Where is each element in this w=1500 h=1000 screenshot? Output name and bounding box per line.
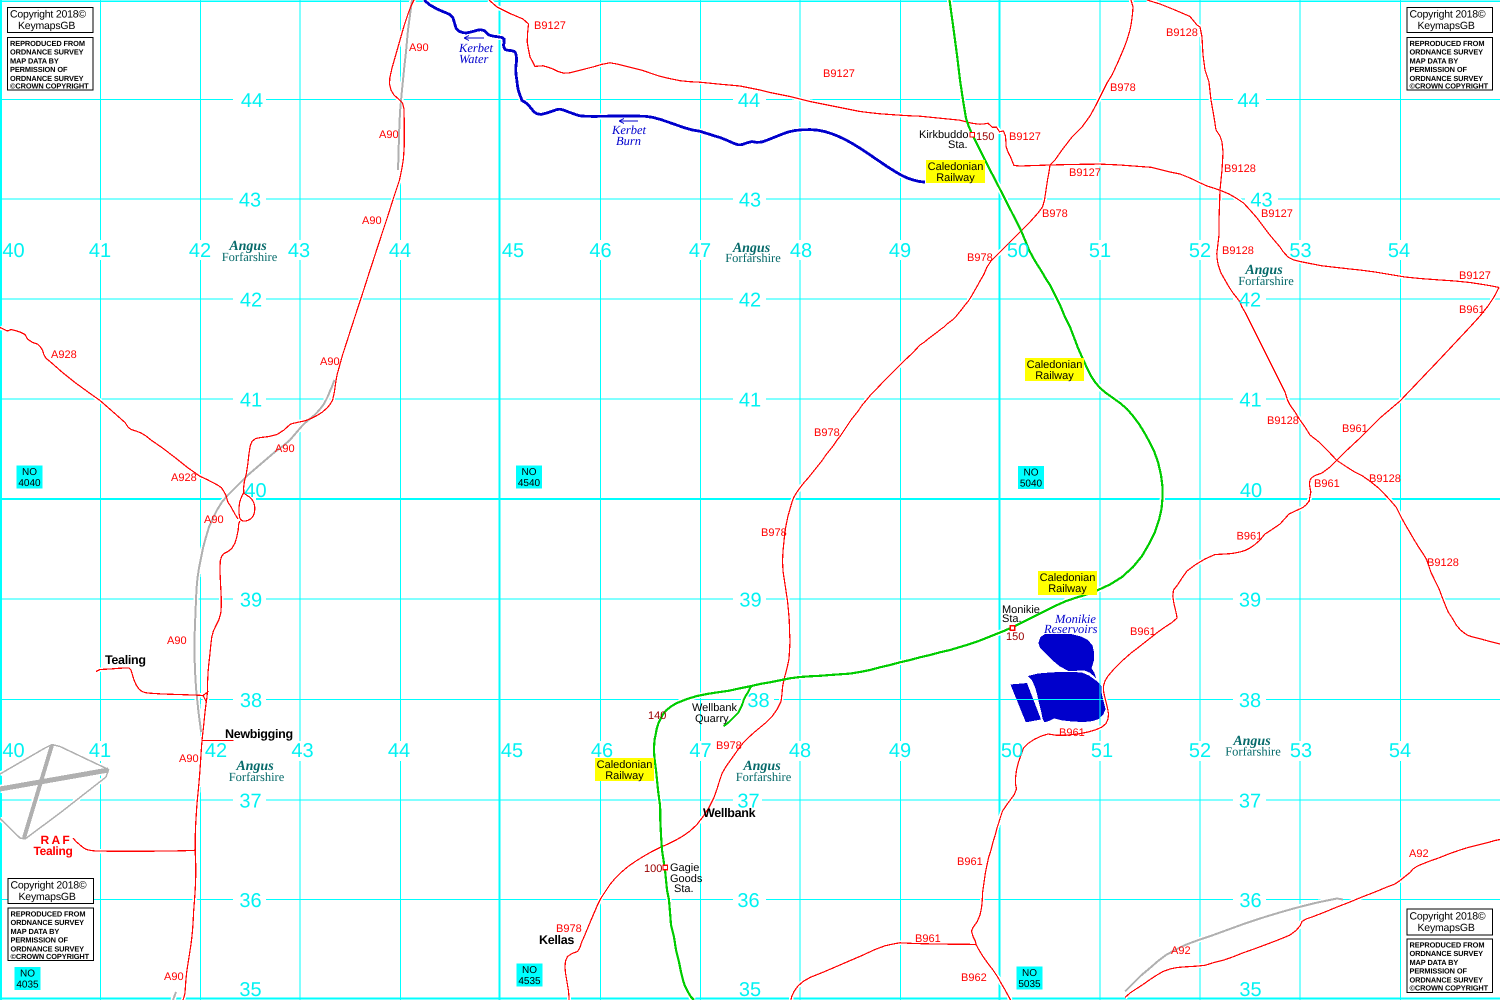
- svg-text:42: 42: [189, 240, 211, 262]
- svg-text:Burn: Burn: [616, 134, 641, 148]
- svg-text:KeymapsGB: KeymapsGB: [19, 891, 76, 903]
- svg-text:5035: 5035: [1018, 979, 1041, 990]
- svg-text:40: 40: [2, 740, 24, 762]
- svg-text:48: 48: [790, 240, 812, 262]
- svg-text:B9127: B9127: [1069, 167, 1101, 179]
- svg-text:A92: A92: [1171, 945, 1191, 957]
- svg-text:Tealing: Tealing: [105, 653, 146, 667]
- svg-text:B962: B962: [961, 972, 987, 984]
- svg-text:44: 44: [388, 740, 410, 762]
- svg-text:B978: B978: [716, 740, 742, 752]
- svg-text:REPRODUCED FROM: REPRODUCED FROM: [1410, 39, 1485, 48]
- svg-text:Forfarshire: Forfarshire: [725, 251, 781, 265]
- svg-text:B961: B961: [1237, 531, 1263, 543]
- svg-text:40: 40: [1240, 480, 1262, 502]
- svg-text:B9127: B9127: [1009, 131, 1041, 143]
- svg-text:MAP DATA BY: MAP DATA BY: [1410, 56, 1459, 65]
- svg-text:B978: B978: [1042, 208, 1068, 220]
- svg-text:42: 42: [240, 290, 262, 312]
- svg-text:43: 43: [739, 190, 761, 212]
- svg-text:48: 48: [789, 740, 811, 762]
- svg-text:37: 37: [239, 791, 261, 813]
- svg-text:ORDNANCE SURVEY: ORDNANCE SURVEY: [11, 918, 85, 927]
- svg-text:REPRODUCED FROM: REPRODUCED FROM: [11, 910, 86, 919]
- svg-text:44: 44: [738, 90, 760, 112]
- svg-text:44: 44: [1237, 90, 1259, 112]
- svg-text:Copyright 2018©: Copyright 2018©: [11, 880, 87, 892]
- svg-text:43: 43: [239, 190, 261, 212]
- svg-text:NO: NO: [1024, 468, 1039, 479]
- svg-text:40: 40: [244, 480, 266, 502]
- svg-text:NO: NO: [522, 467, 537, 478]
- svg-text:Forfarshire: Forfarshire: [229, 770, 285, 784]
- svg-text:B978: B978: [761, 527, 787, 539]
- svg-text:46: 46: [589, 240, 611, 262]
- svg-text:REPRODUCED FROM: REPRODUCED FROM: [10, 39, 85, 48]
- svg-text:B9128: B9128: [1222, 245, 1254, 257]
- svg-text:Water: Water: [459, 52, 489, 66]
- svg-text:A928: A928: [51, 349, 77, 361]
- svg-text:KeymapsGB: KeymapsGB: [1418, 922, 1475, 934]
- svg-text:4540: 4540: [518, 478, 541, 489]
- svg-text:NO: NO: [20, 969, 35, 980]
- svg-text:4035: 4035: [16, 980, 39, 991]
- svg-text:39: 39: [1239, 590, 1261, 612]
- svg-text:©CROWN COPYRIGHT: ©CROWN COPYRIGHT: [11, 952, 90, 961]
- svg-text:43: 43: [288, 240, 310, 262]
- svg-text:Forfarshire: Forfarshire: [222, 250, 278, 264]
- svg-text:35: 35: [739, 979, 761, 1000]
- svg-text:Tealing: Tealing: [33, 844, 72, 858]
- svg-text:ORDNANCE SURVEY: ORDNANCE SURVEY: [1410, 949, 1484, 958]
- svg-text:42: 42: [739, 290, 761, 312]
- svg-text:A90: A90: [379, 129, 399, 141]
- svg-text:PERMISSION OF: PERMISSION OF: [1410, 65, 1468, 74]
- svg-text:B961: B961: [1342, 423, 1368, 435]
- svg-text:B978: B978: [1110, 82, 1136, 94]
- svg-text:Forfarshire: Forfarshire: [1225, 745, 1281, 759]
- svg-text:ORDNANCE SURVEY: ORDNANCE SURVEY: [1410, 48, 1484, 57]
- svg-text:B961: B961: [1059, 727, 1085, 739]
- svg-text:53: 53: [1290, 740, 1312, 762]
- svg-text:ORDNANCE SURVEY: ORDNANCE SURVEY: [10, 48, 84, 57]
- svg-text:41: 41: [89, 740, 111, 762]
- svg-text:B961: B961: [1130, 626, 1156, 638]
- svg-text:36: 36: [1239, 890, 1261, 912]
- svg-text:100: 100: [644, 863, 662, 875]
- svg-text:Railway: Railway: [605, 770, 644, 782]
- svg-text:35: 35: [1239, 979, 1261, 1000]
- svg-text:B9127: B9127: [534, 20, 566, 32]
- svg-text:NO: NO: [522, 965, 537, 976]
- svg-text:50: 50: [1001, 740, 1023, 762]
- svg-text:©CROWN COPYRIGHT: ©CROWN COPYRIGHT: [1410, 983, 1489, 992]
- svg-text:41: 41: [1239, 390, 1261, 412]
- svg-text:Copyright 2018©: Copyright 2018©: [1410, 9, 1486, 21]
- svg-text:PERMISSION OF: PERMISSION OF: [1410, 967, 1468, 976]
- svg-text:©CROWN COPYRIGHT: ©CROWN COPYRIGHT: [1410, 81, 1489, 90]
- svg-text:Wellbank: Wellbank: [703, 806, 756, 820]
- svg-text:REPRODUCED FROM: REPRODUCED FROM: [1410, 941, 1485, 950]
- svg-text:A90: A90: [275, 443, 295, 455]
- svg-text:45: 45: [502, 240, 524, 262]
- svg-text:KeymapsGB: KeymapsGB: [18, 20, 75, 32]
- svg-text:©CROWN COPYRIGHT: ©CROWN COPYRIGHT: [10, 81, 89, 90]
- svg-text:B9128: B9128: [1166, 27, 1198, 39]
- svg-text:Newbigging: Newbigging: [225, 727, 293, 741]
- svg-text:36: 36: [239, 890, 261, 912]
- svg-text:KeymapsGB: KeymapsGB: [1418, 20, 1475, 32]
- svg-text:A90: A90: [204, 514, 224, 526]
- svg-text:36: 36: [737, 890, 759, 912]
- svg-text:44: 44: [241, 90, 263, 112]
- svg-text:54: 54: [1388, 240, 1410, 262]
- svg-text:B9127: B9127: [1261, 208, 1293, 220]
- svg-text:Forfarshire: Forfarshire: [1238, 274, 1294, 288]
- svg-text:A928: A928: [171, 472, 197, 484]
- svg-text:42: 42: [1239, 290, 1261, 312]
- svg-text:47: 47: [689, 740, 711, 762]
- svg-text:NO: NO: [1022, 968, 1037, 979]
- svg-text:40: 40: [2, 240, 24, 262]
- svg-text:35: 35: [239, 979, 261, 1000]
- svg-text:B978: B978: [967, 252, 993, 264]
- svg-text:49: 49: [889, 240, 911, 262]
- svg-text:54: 54: [1389, 740, 1411, 762]
- svg-text:Copyright 2018©: Copyright 2018©: [10, 9, 86, 21]
- svg-text:38: 38: [1239, 690, 1261, 712]
- svg-text:52: 52: [1189, 740, 1211, 762]
- svg-text:B9127: B9127: [1459, 270, 1491, 282]
- svg-text:47: 47: [689, 240, 711, 262]
- svg-text:39: 39: [240, 590, 262, 612]
- svg-text:4535: 4535: [518, 976, 541, 987]
- svg-text:50: 50: [1007, 240, 1029, 262]
- svg-text:PERMISSION OF: PERMISSION OF: [11, 936, 69, 945]
- svg-text:MAP DATA BY: MAP DATA BY: [1410, 958, 1459, 967]
- svg-text:41: 41: [739, 390, 761, 412]
- svg-text:Reservoirs: Reservoirs: [1043, 622, 1098, 636]
- svg-text:Railway: Railway: [1035, 370, 1074, 382]
- svg-text:51: 51: [1091, 740, 1113, 762]
- svg-text:53: 53: [1289, 240, 1311, 262]
- svg-text:Sta.: Sta.: [674, 883, 694, 895]
- svg-text:49: 49: [889, 740, 911, 762]
- svg-text:Forfarshire: Forfarshire: [736, 770, 792, 784]
- svg-text:A90: A90: [409, 42, 429, 54]
- svg-text:A90: A90: [320, 356, 340, 368]
- svg-text:44: 44: [389, 240, 411, 262]
- svg-text:43: 43: [291, 740, 313, 762]
- svg-text:37: 37: [1239, 791, 1261, 813]
- svg-text:4040: 4040: [18, 478, 41, 489]
- svg-text:B961: B961: [1314, 478, 1340, 490]
- svg-text:B9128: B9128: [1369, 473, 1401, 485]
- svg-text:A90: A90: [167, 635, 187, 647]
- svg-text:A92: A92: [1409, 848, 1429, 860]
- svg-text:150: 150: [976, 131, 994, 143]
- svg-text:Kellas: Kellas: [539, 933, 574, 947]
- svg-text:51: 51: [1089, 240, 1111, 262]
- svg-text:140: 140: [648, 710, 666, 722]
- svg-text:PERMISSION OF: PERMISSION OF: [10, 65, 68, 74]
- svg-text:150: 150: [1006, 631, 1024, 643]
- svg-text:A90: A90: [362, 215, 382, 227]
- svg-text:B9128: B9128: [1427, 557, 1459, 569]
- svg-text:Quarry: Quarry: [695, 713, 729, 725]
- svg-text:41: 41: [89, 240, 111, 262]
- svg-text:38: 38: [747, 690, 769, 712]
- svg-text:MAP DATA BY: MAP DATA BY: [10, 56, 59, 65]
- svg-text:38: 38: [240, 690, 262, 712]
- svg-text:B978: B978: [814, 427, 840, 439]
- svg-text:52: 52: [1189, 240, 1211, 262]
- svg-text:B9128: B9128: [1224, 163, 1256, 175]
- svg-text:42: 42: [205, 740, 227, 762]
- svg-text:NO: NO: [22, 467, 37, 478]
- svg-text:B961: B961: [957, 856, 983, 868]
- svg-text:B961: B961: [1459, 304, 1485, 316]
- svg-text:Railway: Railway: [1048, 583, 1087, 595]
- svg-text:A90: A90: [179, 753, 199, 765]
- svg-text:Railway: Railway: [936, 172, 975, 184]
- svg-text:A90: A90: [164, 971, 184, 983]
- svg-text:B9128: B9128: [1267, 415, 1299, 427]
- svg-text:MAP DATA BY: MAP DATA BY: [11, 927, 60, 936]
- svg-text:Copyright 2018©: Copyright 2018©: [1410, 911, 1486, 923]
- svg-text:5040: 5040: [1020, 479, 1043, 490]
- svg-text:39: 39: [739, 590, 761, 612]
- svg-text:B961: B961: [915, 933, 941, 945]
- svg-text:Sta.: Sta.: [948, 139, 968, 151]
- svg-text:45: 45: [501, 740, 523, 762]
- svg-text:41: 41: [240, 390, 262, 412]
- svg-text:B9127: B9127: [823, 68, 855, 80]
- svg-text:Sta.: Sta.: [1002, 613, 1022, 625]
